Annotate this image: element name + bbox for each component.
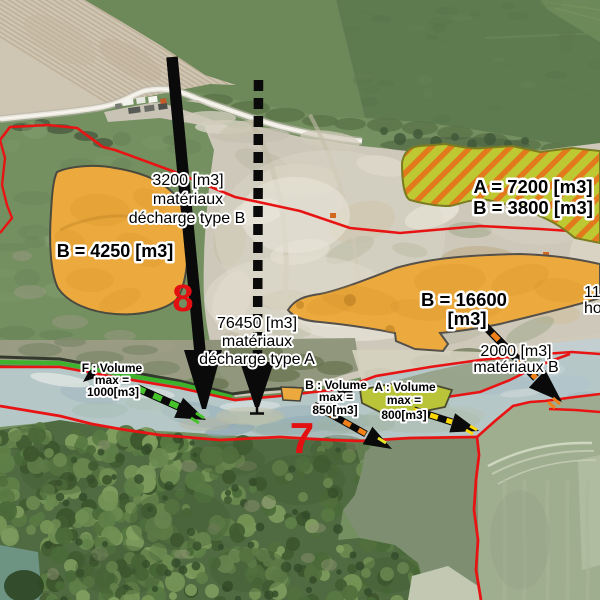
svg-text:décharge type A: décharge type A [199,351,315,368]
svg-text:76450 [m3]: 76450 [m3] [217,315,297,332]
svg-text:B = 4250 [m3]: B = 4250 [m3] [57,241,174,261]
svg-text:3200 [m3]: 3200 [m3] [152,172,223,189]
svg-text:8: 8 [172,278,193,320]
svg-text:matériaux: matériaux [153,191,223,208]
svg-text:850[m3]: 850[m3] [312,403,357,417]
svg-text:1000[m3]: 1000[m3] [87,385,139,399]
svg-text:7: 7 [290,414,314,463]
svg-text:A : Volume: A : Volume [374,380,436,394]
svg-text:A = 7200 [m3]: A = 7200 [m3] [473,176,592,197]
svg-text:matériaux: matériaux [222,333,292,350]
svg-text:max =: max = [387,393,421,407]
svg-text:800[m3]: 800[m3] [381,408,426,422]
svg-text:11: 11 [584,284,600,301]
svg-text:[m3]: [m3] [447,308,486,329]
svg-text:matériaux B: matériaux B [473,359,558,376]
svg-text:ho: ho [584,300,600,317]
svg-text:décharge type B: décharge type B [129,210,246,227]
svg-text:2000 [m3]: 2000 [m3] [480,343,551,360]
svg-text:B = 3800 [m3]: B = 3800 [m3] [473,197,593,218]
svg-text:max =: max = [319,390,353,404]
svg-text:B = 16600: B = 16600 [421,289,507,310]
